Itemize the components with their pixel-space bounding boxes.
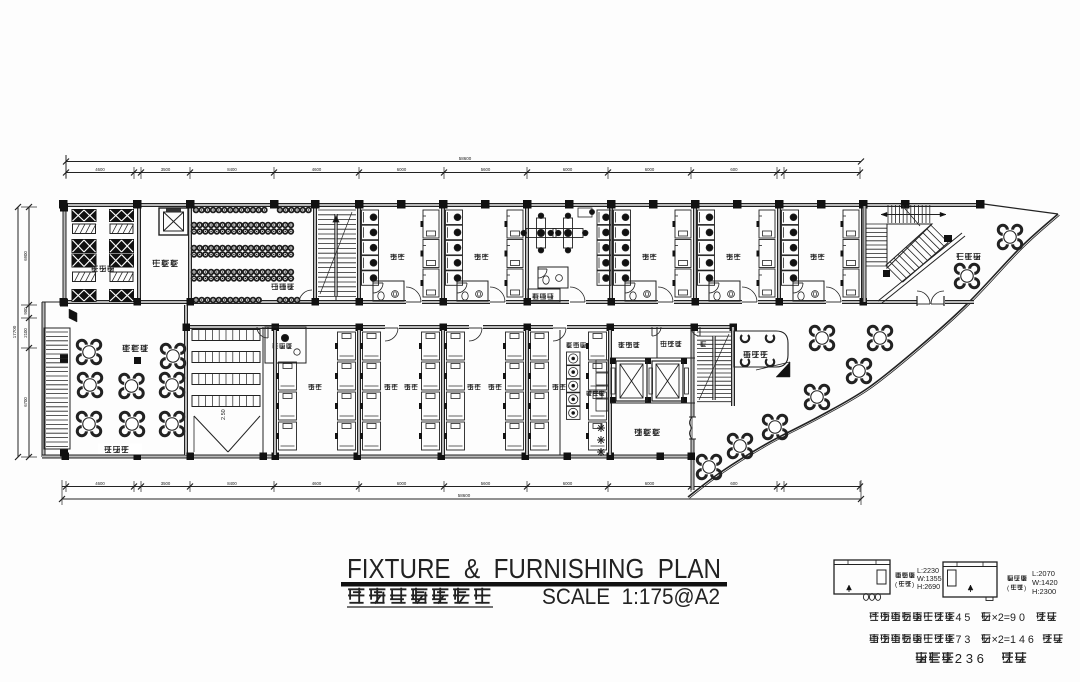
svg-text:6000: 6000 — [563, 167, 573, 172]
svg-text:×2=9 0: ×2=9 0 — [992, 612, 1025, 624]
svg-text:6000: 6000 — [645, 167, 655, 172]
svg-text:4 5: 4 5 — [956, 612, 971, 624]
svg-text:6000: 6000 — [397, 481, 407, 486]
svg-text:6700: 6700 — [23, 397, 28, 407]
svg-text:): ) — [1024, 585, 1026, 592]
svg-text:6000: 6000 — [563, 481, 573, 486]
svg-text:H:2690: H:2690 — [917, 582, 940, 591]
svg-text:58600: 58600 — [459, 156, 472, 161]
svg-text:5600: 5600 — [481, 167, 491, 172]
svg-text:6000: 6000 — [645, 481, 655, 486]
svg-text:SCALE 1:175@A2: SCALE 1:175@A2 — [542, 584, 720, 609]
svg-text:600: 600 — [730, 481, 738, 486]
svg-text:3500: 3500 — [161, 167, 171, 172]
svg-text:6900: 6900 — [23, 251, 28, 261]
svg-text:FIXTURE & FURNISHING PLAN: FIXTURE & FURNISHING PLAN — [347, 553, 721, 584]
svg-text:4600: 4600 — [312, 481, 322, 486]
svg-text:7 3: 7 3 — [956, 634, 971, 646]
svg-text:5600: 5600 — [481, 481, 491, 486]
svg-text:×2=1 4 6: ×2=1 4 6 — [992, 634, 1034, 646]
svg-text:W:1420: W:1420 — [1032, 578, 1058, 587]
svg-text:L:2070: L:2070 — [1032, 569, 1055, 578]
svg-text:4600: 4600 — [95, 167, 105, 172]
svg-text:600: 600 — [730, 167, 738, 172]
svg-text:2100: 2100 — [23, 328, 28, 338]
svg-text:8400: 8400 — [227, 167, 237, 172]
svg-text:2 3 6: 2 3 6 — [955, 651, 984, 666]
svg-text:2.50: 2.50 — [221, 409, 227, 420]
svg-text:8400: 8400 — [227, 481, 237, 486]
svg-text:17700: 17700 — [12, 325, 17, 338]
svg-text:): ) — [912, 582, 914, 589]
svg-text:6000: 6000 — [397, 167, 407, 172]
svg-text:4600: 4600 — [312, 167, 322, 172]
svg-text:4600: 4600 — [95, 481, 105, 486]
svg-text:900: 900 — [23, 307, 28, 315]
svg-text:3500: 3500 — [161, 481, 171, 486]
svg-text:58600: 58600 — [458, 493, 471, 498]
svg-text:H:2300: H:2300 — [1032, 587, 1056, 596]
